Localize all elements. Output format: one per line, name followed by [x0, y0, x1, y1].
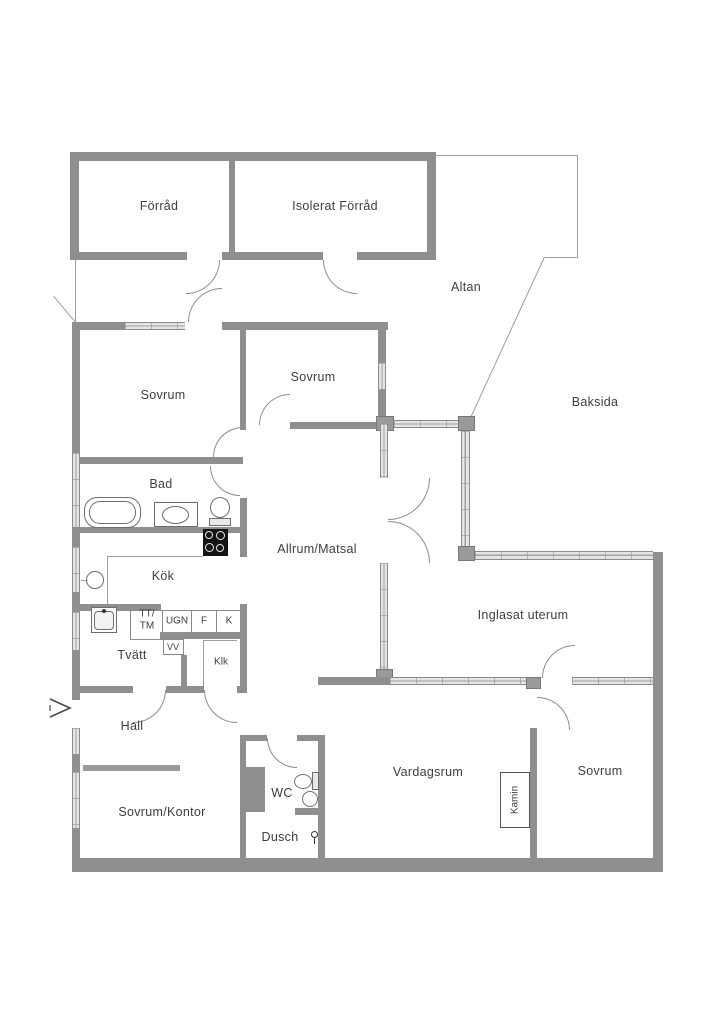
window [380, 424, 388, 478]
room-label-sovrum-kontor: Sovrum/Kontor [118, 805, 205, 819]
wall [318, 677, 390, 685]
wall [70, 152, 436, 161]
wall [295, 808, 323, 815]
door-arc-isolerat-forrad [323, 260, 357, 294]
klk-outline [203, 640, 204, 687]
wall [240, 330, 246, 430]
wall [222, 252, 323, 260]
entrance-arrow-icon [46, 694, 74, 722]
window [390, 677, 526, 685]
wall [72, 754, 80, 772]
wall [378, 389, 386, 418]
room-label-isolerat-forrad: Isolerat Förråd [292, 199, 378, 213]
laundry-sink-basin [94, 611, 114, 630]
wall [318, 735, 325, 858]
room-label-forrad: Förråd [140, 199, 179, 213]
wall [240, 498, 247, 557]
shower-icon [311, 831, 318, 838]
wall [246, 735, 267, 741]
wall [290, 422, 382, 429]
wc-toilet-bowl-icon [294, 774, 312, 789]
wall [240, 604, 247, 693]
altan-outline [545, 257, 578, 258]
wall-post [526, 677, 541, 689]
appliance-label-tm: TM [140, 621, 154, 632]
window [572, 677, 653, 685]
room-label-baksida: Baksida [572, 395, 619, 409]
appliance-label-f: F [201, 616, 207, 627]
altan-outline [435, 155, 578, 156]
appliance-label-ugn: UGN [166, 616, 188, 627]
room-label-inglasat-uterum: Inglasat uterum [478, 608, 569, 622]
wall [72, 858, 663, 872]
wall [237, 686, 247, 693]
faucet-icon [102, 609, 106, 613]
appliance-label-vv: VV [167, 642, 179, 652]
door-arc-french-bottom [388, 521, 430, 563]
wall [83, 765, 180, 771]
wall-block [240, 767, 265, 812]
wall [229, 161, 235, 252]
room-label-dusch: Dusch [262, 830, 299, 844]
wall [222, 322, 388, 330]
room-label-kok: Kök [152, 569, 174, 583]
window [394, 420, 458, 428]
door-arc-french-top [388, 478, 430, 520]
passage-outline [75, 260, 76, 322]
room-label-sovrum-nw: Sovrum [141, 388, 186, 402]
appliance-label-k: K [226, 616, 233, 627]
stove-icon [203, 529, 228, 556]
appliance-label-tt: TT/ [140, 609, 155, 620]
wall [240, 812, 246, 858]
door-arc-sovrum-nw [213, 427, 243, 457]
window [72, 772, 80, 828]
counter-line [107, 556, 203, 557]
wc-toilet-tank-icon [312, 772, 319, 790]
wall [72, 322, 125, 330]
wall [166, 686, 204, 693]
wall [427, 152, 436, 260]
floor-plan: Förråd Isolerat Förråd Altan Baksida Sov… [0, 0, 724, 1024]
wall [72, 527, 80, 547]
bathtub-inner [89, 501, 136, 524]
wall [297, 735, 318, 741]
wall [80, 457, 243, 464]
door-arc-klk [204, 690, 237, 723]
wall [530, 728, 537, 858]
wall-post [458, 416, 475, 431]
window [378, 363, 386, 389]
door-arc-sovrum-se [537, 697, 570, 730]
window [125, 322, 185, 330]
window [72, 453, 80, 527]
window [72, 547, 80, 592]
room-label-wc: WC [271, 786, 292, 800]
shower-icon-line [314, 838, 315, 844]
wc-sink-icon [302, 791, 318, 807]
door-arc-uterum [542, 645, 575, 678]
counter-line [107, 556, 108, 604]
room-label-allrum-matsal: Allrum/Matsal [277, 542, 357, 556]
room-label-bad: Bad [149, 477, 172, 491]
window [72, 728, 80, 754]
room-label-sovrum-se: Sovrum [578, 764, 623, 778]
room-label-klk: Klk [214, 657, 228, 668]
wall [72, 330, 80, 453]
toilet-bowl-icon [210, 497, 230, 518]
floor-drain-tick [81, 580, 88, 581]
door-arc-bad [210, 466, 240, 496]
floor-drain-icon [86, 571, 104, 589]
wall [72, 686, 133, 693]
basin-icon [162, 506, 189, 524]
window [475, 551, 653, 560]
room-label-altan: Altan [451, 280, 481, 294]
window [380, 563, 388, 669]
window [461, 431, 470, 546]
room-label-kamin: Kamin [510, 786, 521, 814]
door-arc-sovrum-n [259, 394, 290, 425]
wall [653, 552, 663, 872]
wall [378, 330, 386, 363]
wall [357, 252, 436, 260]
room-label-tvatt: Tvätt [117, 648, 146, 662]
wall [160, 632, 247, 639]
window [72, 612, 80, 650]
wall [70, 152, 79, 260]
altan-outline [577, 155, 578, 258]
toilet-tank-icon [209, 518, 231, 526]
room-label-hall: Hall [121, 719, 144, 733]
wall [70, 252, 187, 260]
klk-outline [203, 640, 237, 641]
room-label-vardagsrum: Vardagsrum [393, 765, 463, 779]
room-label-sovrum-n: Sovrum [291, 370, 336, 384]
door-arc-wc [267, 738, 297, 768]
wall-post [458, 546, 475, 561]
gate-line [53, 296, 76, 323]
